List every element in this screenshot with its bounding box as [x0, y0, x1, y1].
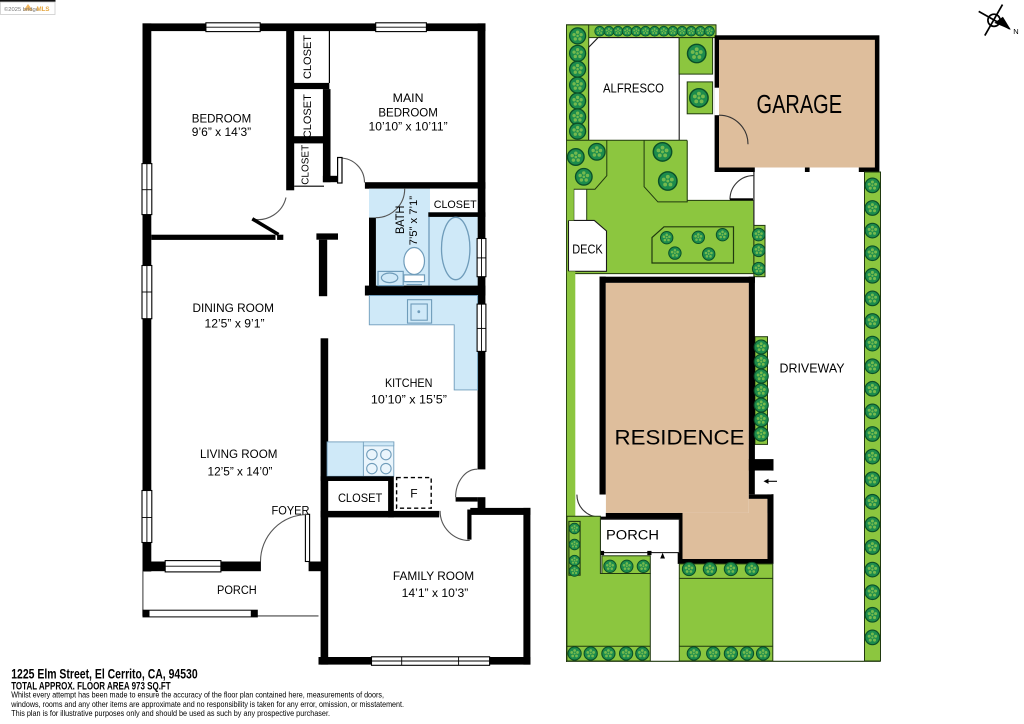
svg-text:10’10” x 10’11”: 10’10” x 10’11”	[369, 120, 448, 134]
svg-text:MLS: MLS	[37, 6, 50, 13]
svg-text:This plan is for illustrative: This plan is for illustrative purposes o…	[11, 708, 330, 718]
svg-text:7’5” x 7’1”: 7’5” x 7’1”	[408, 196, 420, 246]
svg-text:©2025 bridge: ©2025 bridge	[4, 6, 39, 13]
svg-text:BEDROOM: BEDROOM	[192, 111, 251, 125]
svg-text:FAMILY ROOM: FAMILY ROOM	[393, 569, 474, 583]
svg-text:CLOSET: CLOSET	[434, 199, 477, 211]
svg-text:CLOSET: CLOSET	[302, 94, 314, 138]
svg-text:PORCH: PORCH	[606, 528, 659, 543]
svg-text:LIVING ROOM: LIVING ROOM	[200, 447, 278, 461]
svg-text:MAIN: MAIN	[393, 91, 424, 105]
svg-text:F: F	[410, 487, 417, 501]
svg-text:Whilst every attempt has been: Whilst every attempt has been made to en…	[11, 689, 384, 699]
svg-text:CLOSET: CLOSET	[338, 493, 382, 505]
svg-text:CLOSET: CLOSET	[301, 145, 312, 185]
svg-text:ALFRESCO: ALFRESCO	[603, 82, 664, 96]
svg-text:12’5” x 14’0”: 12’5” x 14’0”	[208, 465, 273, 479]
svg-text:CLOSET: CLOSET	[302, 35, 314, 79]
svg-text:10’10” x 15’5”: 10’10” x 15’5”	[371, 393, 447, 407]
svg-text:DINING ROOM: DINING ROOM	[192, 301, 274, 315]
svg-text:1225 Elm Street, El Cerrito, C: 1225 Elm Street, El Cerrito, CA, 94530	[11, 666, 198, 681]
svg-text:RESIDENCE: RESIDENCE	[615, 426, 745, 450]
svg-text:DECK: DECK	[572, 242, 603, 257]
svg-text:BEDROOM: BEDROOM	[378, 105, 438, 119]
svg-text:KITCHEN: KITCHEN	[385, 376, 433, 390]
svg-text:BATH: BATH	[395, 206, 407, 235]
svg-text:12’5” x 9’1”: 12’5” x 9’1”	[205, 317, 265, 331]
svg-text:FOYER: FOYER	[272, 506, 310, 518]
svg-text:9’6” x 14’3”: 9’6” x 14’3”	[192, 125, 251, 139]
svg-text:14’1” x 10’3”: 14’1” x 10’3”	[402, 586, 469, 600]
svg-text:N: N	[1013, 27, 1018, 36]
svg-text:GARAGE: GARAGE	[757, 89, 843, 119]
svg-text:DRIVEWAY: DRIVEWAY	[780, 361, 845, 376]
svg-text:PORCH: PORCH	[217, 585, 257, 597]
